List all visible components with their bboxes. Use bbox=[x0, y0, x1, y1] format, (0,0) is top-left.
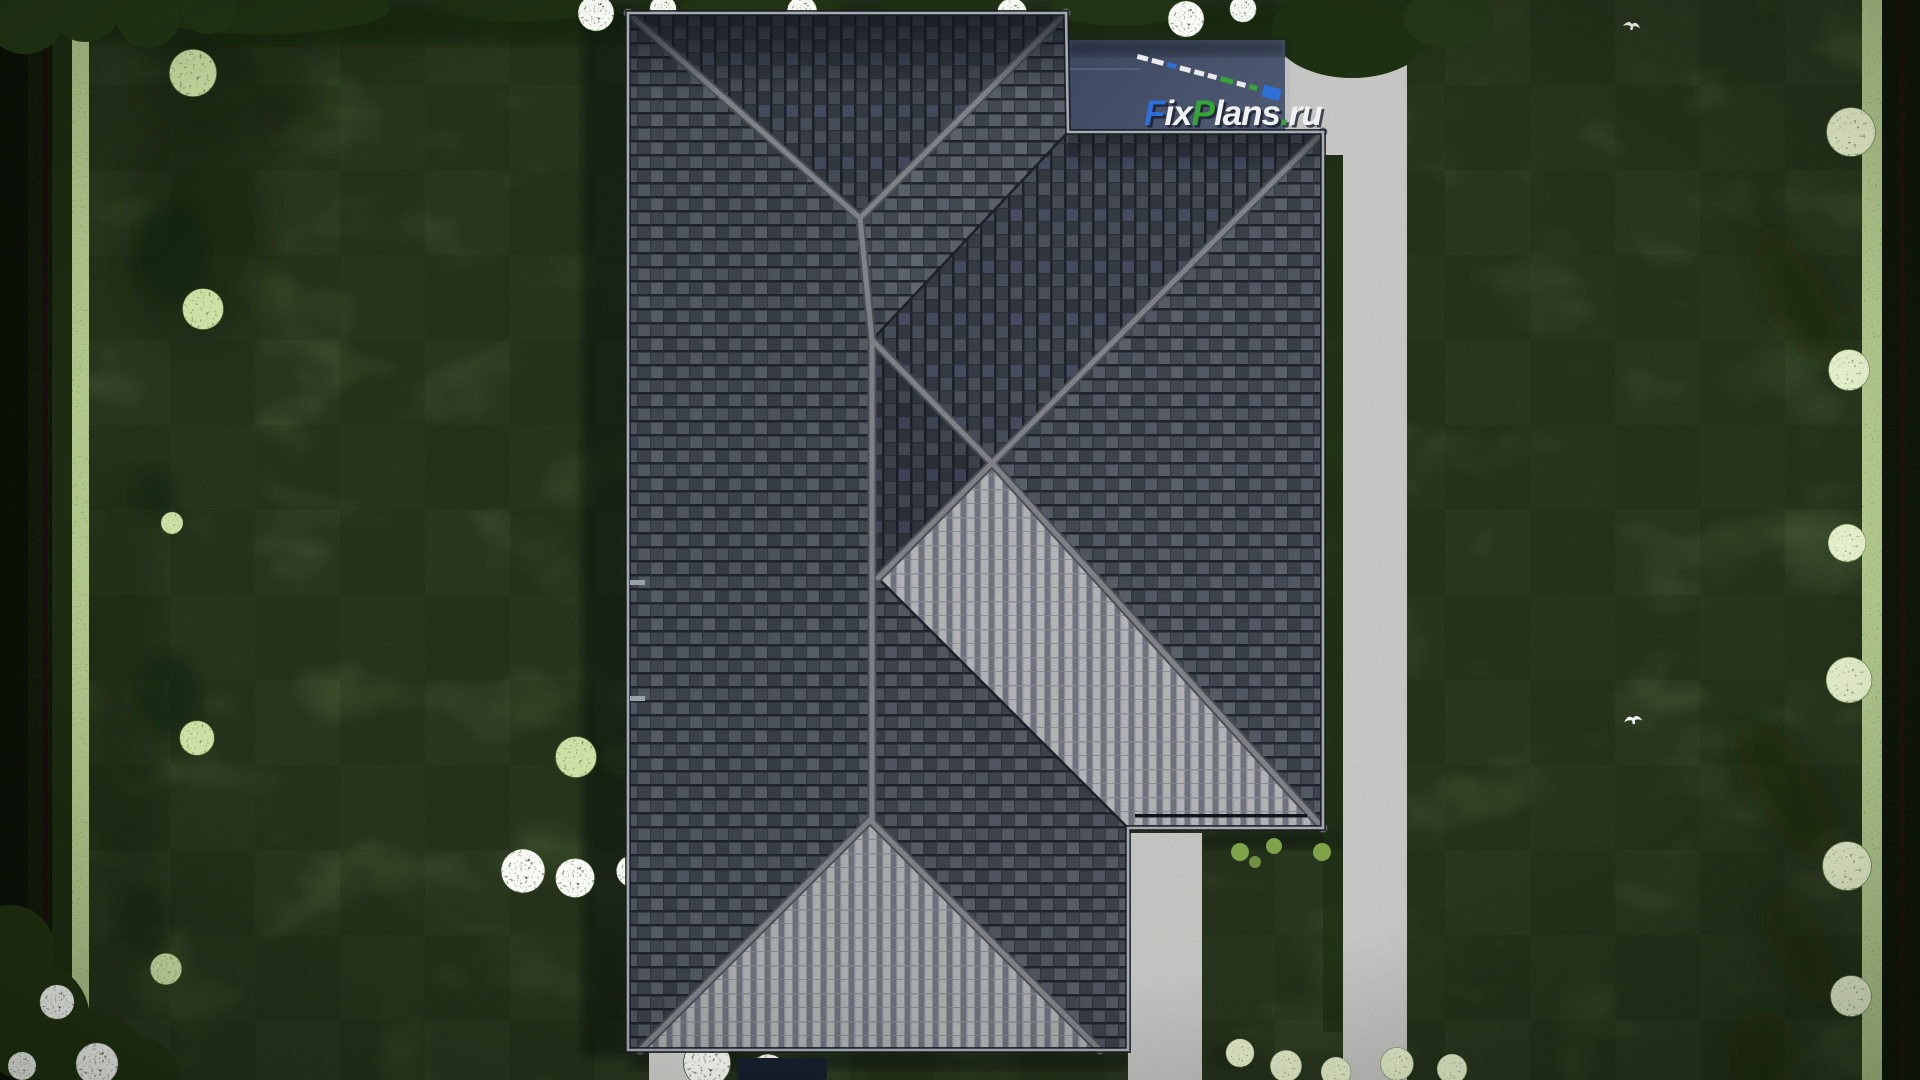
aerial-render: FixPlans.ru FixPlans.ru bbox=[0, 0, 1920, 1080]
scene-svg: FixPlans.ru FixPlans.ru bbox=[0, 0, 1920, 1080]
vignette-overlay bbox=[0, 0, 1920, 1080]
